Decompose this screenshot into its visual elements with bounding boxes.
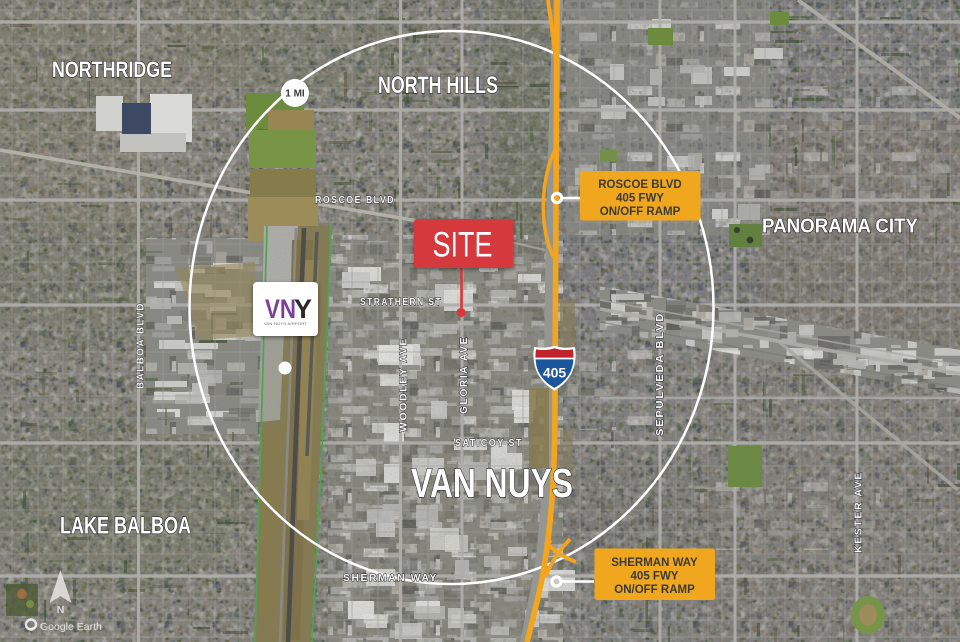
svg-text:ROSCOE BLVD: ROSCOE BLVD xyxy=(315,195,395,206)
svg-text:STRATHERN ST: STRATHERN ST xyxy=(360,297,442,308)
svg-text:405: 405 xyxy=(543,365,567,381)
svg-text:BALBOA BLVD: BALBOA BLVD xyxy=(136,302,147,389)
svg-text:SITE: SITE xyxy=(433,226,493,265)
svg-text:LAKE BALBOA: LAKE BALBOA xyxy=(60,513,191,540)
svg-text:WOODLEY AVE: WOODLEY AVE xyxy=(399,337,410,432)
svg-text:SATICOY ST: SATICOY ST xyxy=(455,438,523,449)
svg-text:NORTHRIDGE: NORTHRIDGE xyxy=(52,57,172,82)
svg-text:405 FWY: 405 FWY xyxy=(631,571,679,583)
svg-text:1 MI: 1 MI xyxy=(285,89,305,100)
svg-text:SHERMAN WAY: SHERMAN WAY xyxy=(611,557,698,569)
svg-text:GLORIA AVE: GLORIA AVE xyxy=(459,336,470,414)
svg-text:N: N xyxy=(57,604,65,616)
svg-text:KESTER AVE: KESTER AVE xyxy=(854,471,865,553)
svg-text:SEPULVEDA BLVD: SEPULVEDA BLVD xyxy=(655,312,666,436)
svg-text:Google Earth: Google Earth xyxy=(40,621,102,633)
svg-text:NORTH HILLS: NORTH HILLS xyxy=(378,72,498,99)
svg-text:VN: VN xyxy=(265,294,296,324)
svg-text:405 FWY: 405 FWY xyxy=(616,193,664,205)
svg-text:ON/OFF RAMP: ON/OFF RAMP xyxy=(600,206,681,218)
svg-text:VAN NUYS: VAN NUYS xyxy=(411,460,573,506)
svg-text:SHERMAN WAY: SHERMAN WAY xyxy=(343,573,438,584)
svg-text:PANORAMA CITY: PANORAMA CITY xyxy=(762,215,918,238)
svg-text:VAN NUYS AIRPORT: VAN NUYS AIRPORT xyxy=(264,321,308,326)
svg-text:ROSCOE BLVD: ROSCOE BLVD xyxy=(598,179,682,191)
svg-text:Y: Y xyxy=(294,294,312,324)
svg-text:ON/OFF RAMP: ON/OFF RAMP xyxy=(614,584,695,596)
